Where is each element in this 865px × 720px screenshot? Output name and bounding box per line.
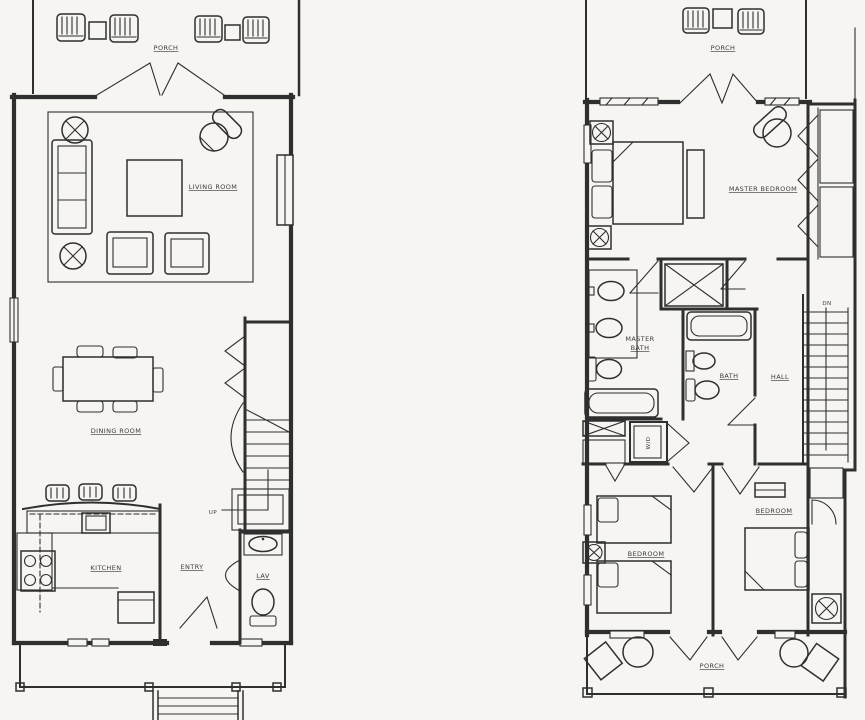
porch-side-table xyxy=(713,9,732,28)
porch-lower-label: PORCH xyxy=(700,662,725,670)
living-room-label: LIVING ROOM xyxy=(189,183,238,191)
ff-lav: LAV xyxy=(240,530,291,643)
kitchen-counter xyxy=(17,533,52,590)
twin-bed xyxy=(597,561,671,613)
dining-chair xyxy=(153,368,163,392)
bathtub xyxy=(687,312,751,340)
master-bath-label: MASTER xyxy=(625,335,654,343)
bifold-closet-doors xyxy=(225,336,245,398)
porch-label: PORCH xyxy=(154,44,179,52)
bedroom-chair xyxy=(751,104,791,147)
sf-bedroom-right: BEDROOM xyxy=(713,464,843,635)
shower xyxy=(665,264,723,306)
lav-door-swing xyxy=(226,560,241,591)
porch-post xyxy=(704,688,713,697)
bathtub xyxy=(585,389,658,417)
stairs-dn-label: DN xyxy=(822,301,831,307)
lav-label: LAV xyxy=(256,572,270,580)
door-swing xyxy=(728,398,755,425)
closet-hatch xyxy=(810,468,843,498)
sf-exterior-walls xyxy=(584,98,855,697)
round-side-table xyxy=(62,117,88,143)
ff-living-room: LIVING ROOM xyxy=(48,107,293,282)
porch-chair xyxy=(584,642,622,680)
porch-chair xyxy=(243,17,269,43)
dining-chair xyxy=(113,401,137,412)
sf-lower-porch: PORCH xyxy=(583,635,846,697)
area-rug xyxy=(48,112,253,282)
corner-chair xyxy=(200,107,245,152)
armchair xyxy=(107,232,153,274)
sofa xyxy=(52,140,92,234)
washer-dryer-label: W/D xyxy=(646,437,652,450)
ff-rear-porch xyxy=(16,645,285,720)
dining-chair xyxy=(77,401,103,412)
stairs-up-label: UP xyxy=(209,510,217,516)
counter-appliance xyxy=(82,513,110,533)
french-doors xyxy=(680,74,758,103)
door-swing xyxy=(670,637,707,660)
porch-round-table xyxy=(623,637,653,667)
window xyxy=(10,298,18,342)
stove xyxy=(21,551,55,591)
ff-stairs: UP xyxy=(209,318,291,530)
linen-bifold xyxy=(605,464,625,481)
porch-chair xyxy=(683,8,709,33)
door-swing xyxy=(673,467,713,492)
attic-access xyxy=(583,421,625,436)
door-swing xyxy=(722,467,759,494)
bar-counter xyxy=(23,503,160,510)
door-swing xyxy=(721,261,745,289)
floor-plan-drawing: PORCH xyxy=(0,0,865,720)
nightstand xyxy=(590,121,613,144)
coffee-table xyxy=(127,160,182,216)
door-swing xyxy=(722,637,757,660)
kitchen-island xyxy=(118,592,154,623)
lav-sink xyxy=(244,534,282,555)
sf-bath-block: MASTER BATH BATH xyxy=(585,259,757,464)
master-bedroom-label: MASTER BEDROOM xyxy=(729,185,797,193)
closet-hatch xyxy=(820,187,853,257)
ff-front-porch: PORCH xyxy=(33,0,299,95)
porch-steps xyxy=(153,691,243,720)
master-bath-label: BATH xyxy=(631,344,650,352)
bar-stool xyxy=(113,485,136,501)
closet-door-swing xyxy=(812,500,836,524)
door-swing xyxy=(668,424,689,461)
porch-side-table xyxy=(225,25,240,40)
queen-bed xyxy=(745,528,809,590)
bath-sink xyxy=(686,351,715,371)
dining-chair xyxy=(53,367,63,391)
door-swing xyxy=(630,261,658,293)
closet-hatch xyxy=(820,110,853,183)
sf-bedroom-left: BEDROOM xyxy=(583,496,671,613)
window xyxy=(600,98,799,105)
master-bed xyxy=(592,142,683,224)
linen-closet-hatch xyxy=(583,440,625,463)
bedroom-left-label: BEDROOM xyxy=(628,550,665,558)
window xyxy=(277,155,293,225)
twin-bed xyxy=(597,496,671,543)
porch-chair xyxy=(110,15,138,42)
bar-stool xyxy=(46,485,69,501)
porch-chair xyxy=(57,14,85,41)
curved-door xyxy=(231,403,243,472)
ff-kitchen: KITCHEN xyxy=(17,484,160,643)
bath-label: BATH xyxy=(720,372,739,380)
toilet xyxy=(586,357,622,381)
dining-table xyxy=(63,357,153,401)
ff-entry: ENTRY xyxy=(180,560,240,628)
porch-side-table xyxy=(89,22,106,39)
porch-chair xyxy=(195,16,222,42)
dining-chair xyxy=(77,346,103,357)
round-side-table xyxy=(60,243,86,269)
ff-dining-room: DINING ROOM xyxy=(53,346,163,435)
washer-dryer-closet: W/D xyxy=(630,422,667,462)
bed-bench xyxy=(687,150,704,218)
french-doors xyxy=(97,63,224,95)
dresser xyxy=(755,483,785,497)
porch-upper-label: PORCH xyxy=(711,44,736,52)
second-floor-plan: PORCH xyxy=(583,0,855,697)
toilet xyxy=(250,589,276,626)
hall-label: HALL xyxy=(771,373,789,381)
sf-upper-porch: PORCH xyxy=(586,0,855,103)
kitchen-label: KITCHEN xyxy=(91,564,122,572)
nightstand xyxy=(588,226,611,249)
bar-stool xyxy=(79,484,102,500)
entry-label: ENTRY xyxy=(180,563,203,571)
bedroom-right-label: BEDROOM xyxy=(756,507,793,515)
porch-chair xyxy=(738,9,764,34)
toilet xyxy=(686,379,719,401)
dining-room-label: DINING ROOM xyxy=(91,427,141,435)
first-floor-plan: PORCH xyxy=(10,0,299,720)
nightstand xyxy=(812,594,841,623)
entry-door-swing xyxy=(180,597,217,628)
armchair xyxy=(165,233,209,274)
